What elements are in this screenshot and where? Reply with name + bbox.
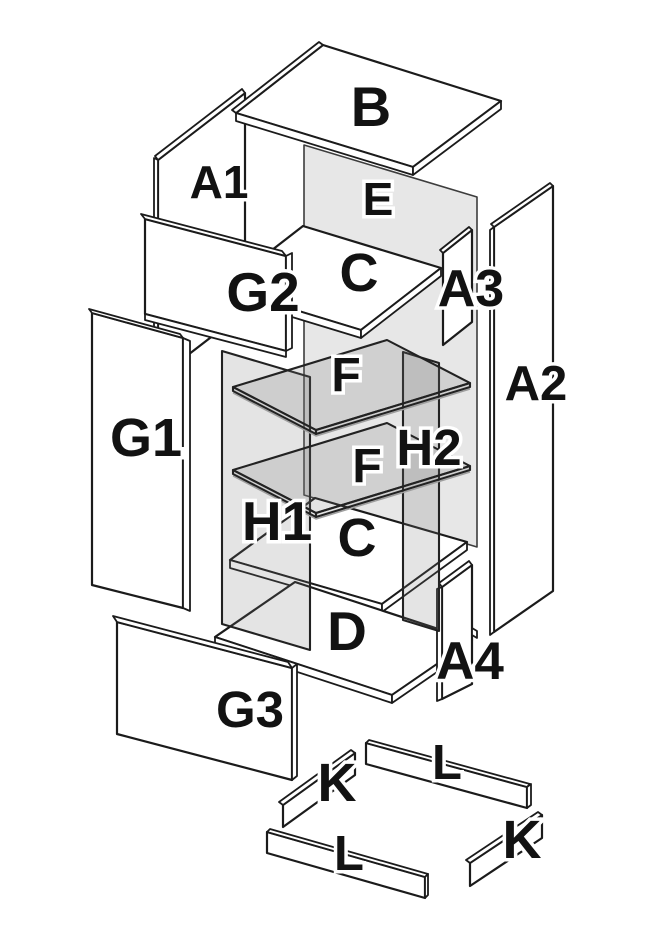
label-a1: A1 xyxy=(190,156,249,208)
label-k-right: K xyxy=(503,810,542,870)
label-c-top: C xyxy=(340,243,379,303)
l-back-end-cap xyxy=(527,784,531,808)
label-g3: G3 xyxy=(216,681,284,738)
label-h1: H1 xyxy=(242,490,312,552)
label-h2: H2 xyxy=(396,419,461,476)
label-a3: A3 xyxy=(438,260,504,318)
label-c-bottom: C xyxy=(338,508,377,568)
assembly-diagram-page: B A1 E G2 C A3 A2 G1 F H2 F H1 C D A4 G3… xyxy=(0,0,648,942)
label-d: D xyxy=(327,600,367,662)
label-g2: G2 xyxy=(226,261,299,323)
label-l-front: L xyxy=(334,827,364,881)
label-g1: G1 xyxy=(110,408,182,468)
exploded-view-diagram: B A1 E G2 C A3 A2 G1 F H2 F H1 C D A4 G3… xyxy=(0,0,648,942)
label-l-back: L xyxy=(432,736,462,790)
label-e: E xyxy=(363,173,394,225)
label-a4: A4 xyxy=(436,632,504,691)
label-a2: A2 xyxy=(505,357,568,411)
g3-right-edge xyxy=(292,664,297,780)
label-k-left: K xyxy=(318,753,357,813)
label-f-bottom: F xyxy=(352,440,381,493)
l-front-end-cap xyxy=(425,874,428,898)
g1-right-edge xyxy=(183,338,190,611)
label-f-top: F xyxy=(331,349,360,402)
label-b: B xyxy=(351,75,391,138)
